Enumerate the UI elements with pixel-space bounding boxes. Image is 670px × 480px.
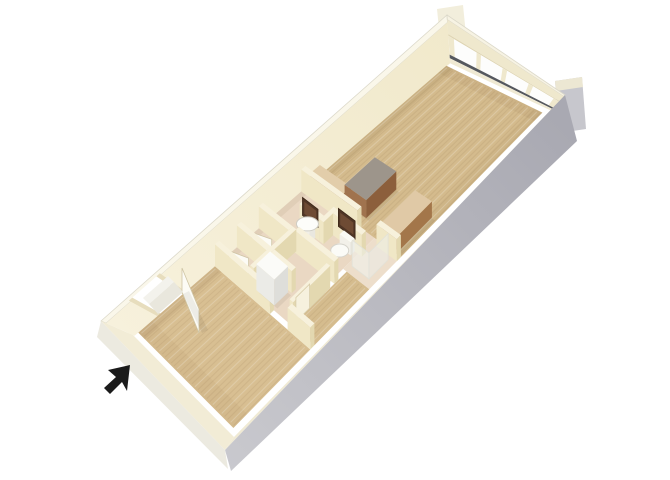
bath-mid-wall-side-sw xyxy=(320,220,324,245)
niche-wall-side-se xyxy=(292,267,296,293)
floorplan-svg xyxy=(0,0,670,480)
kitchen-wall-b-side-se xyxy=(397,235,401,261)
bath-west-wall-side-se xyxy=(334,258,338,284)
window-mullion-1 xyxy=(476,53,481,71)
cursor-arrow xyxy=(104,365,130,394)
partition-wall-bedroom-b-side-se xyxy=(310,323,314,349)
floorplan-3d-render xyxy=(0,0,670,480)
